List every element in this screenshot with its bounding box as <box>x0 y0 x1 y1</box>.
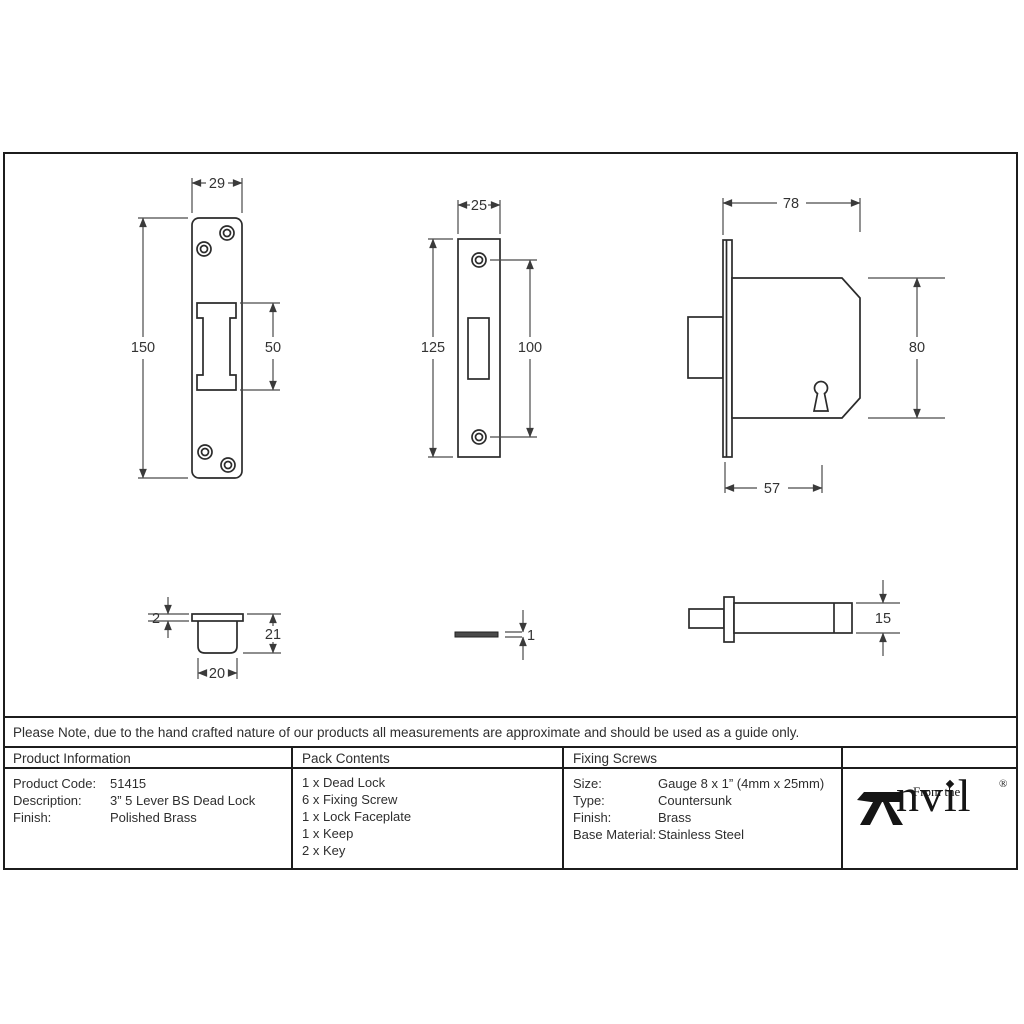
logo-wordmark: nvıl <box>896 770 972 822</box>
description-value: 3” 5 Lever BS Dead Lock <box>110 793 255 808</box>
product-code-value: 51415 <box>110 776 146 791</box>
screw-size-value: Gauge 8 x 1” (4mm x 25mm) <box>658 776 824 791</box>
screw-material-label: Base Material: <box>573 827 656 842</box>
pack-item: 1 x Keep <box>302 826 353 841</box>
table-header-divider <box>5 767 1016 769</box>
pack-item: 6 x Fixing Screw <box>302 792 397 807</box>
header-product-information: Product Information <box>13 751 131 766</box>
product-spec-sheet: 29 150 50 25 <box>0 0 1024 1024</box>
finish-label: Finish: <box>13 810 51 825</box>
screw-type-label: Type: <box>573 793 605 808</box>
header-fixing-screws: Fixing Screws <box>573 751 657 766</box>
table-column-divider <box>562 748 564 868</box>
table-column-divider <box>841 748 843 868</box>
screw-type-value: Countersunk <box>658 793 732 808</box>
header-pack-contents: Pack Contents <box>302 751 390 766</box>
screw-finish-value: Brass <box>658 810 691 825</box>
screw-material-value: Stainless Steel <box>658 827 744 842</box>
screw-size-label: Size: <box>573 776 602 791</box>
screw-finish-label: Finish: <box>573 810 611 825</box>
from-the-anvil-logo: From the nvıl ® <box>856 780 1012 832</box>
drawing-area-frame <box>3 152 1018 718</box>
finish-value: Polished Brass <box>110 810 197 825</box>
pack-item: 2 x Key <box>302 843 345 858</box>
pack-item: 1 x Lock Faceplate <box>302 809 411 824</box>
product-code-label: Product Code: <box>13 776 96 791</box>
table-column-divider <box>291 748 293 868</box>
registered-trademark: ® <box>999 778 1007 790</box>
pack-item: 1 x Dead Lock <box>302 775 385 790</box>
measurement-disclaimer: Please Note, due to the hand crafted nat… <box>13 725 799 740</box>
description-label: Description: <box>13 793 82 808</box>
